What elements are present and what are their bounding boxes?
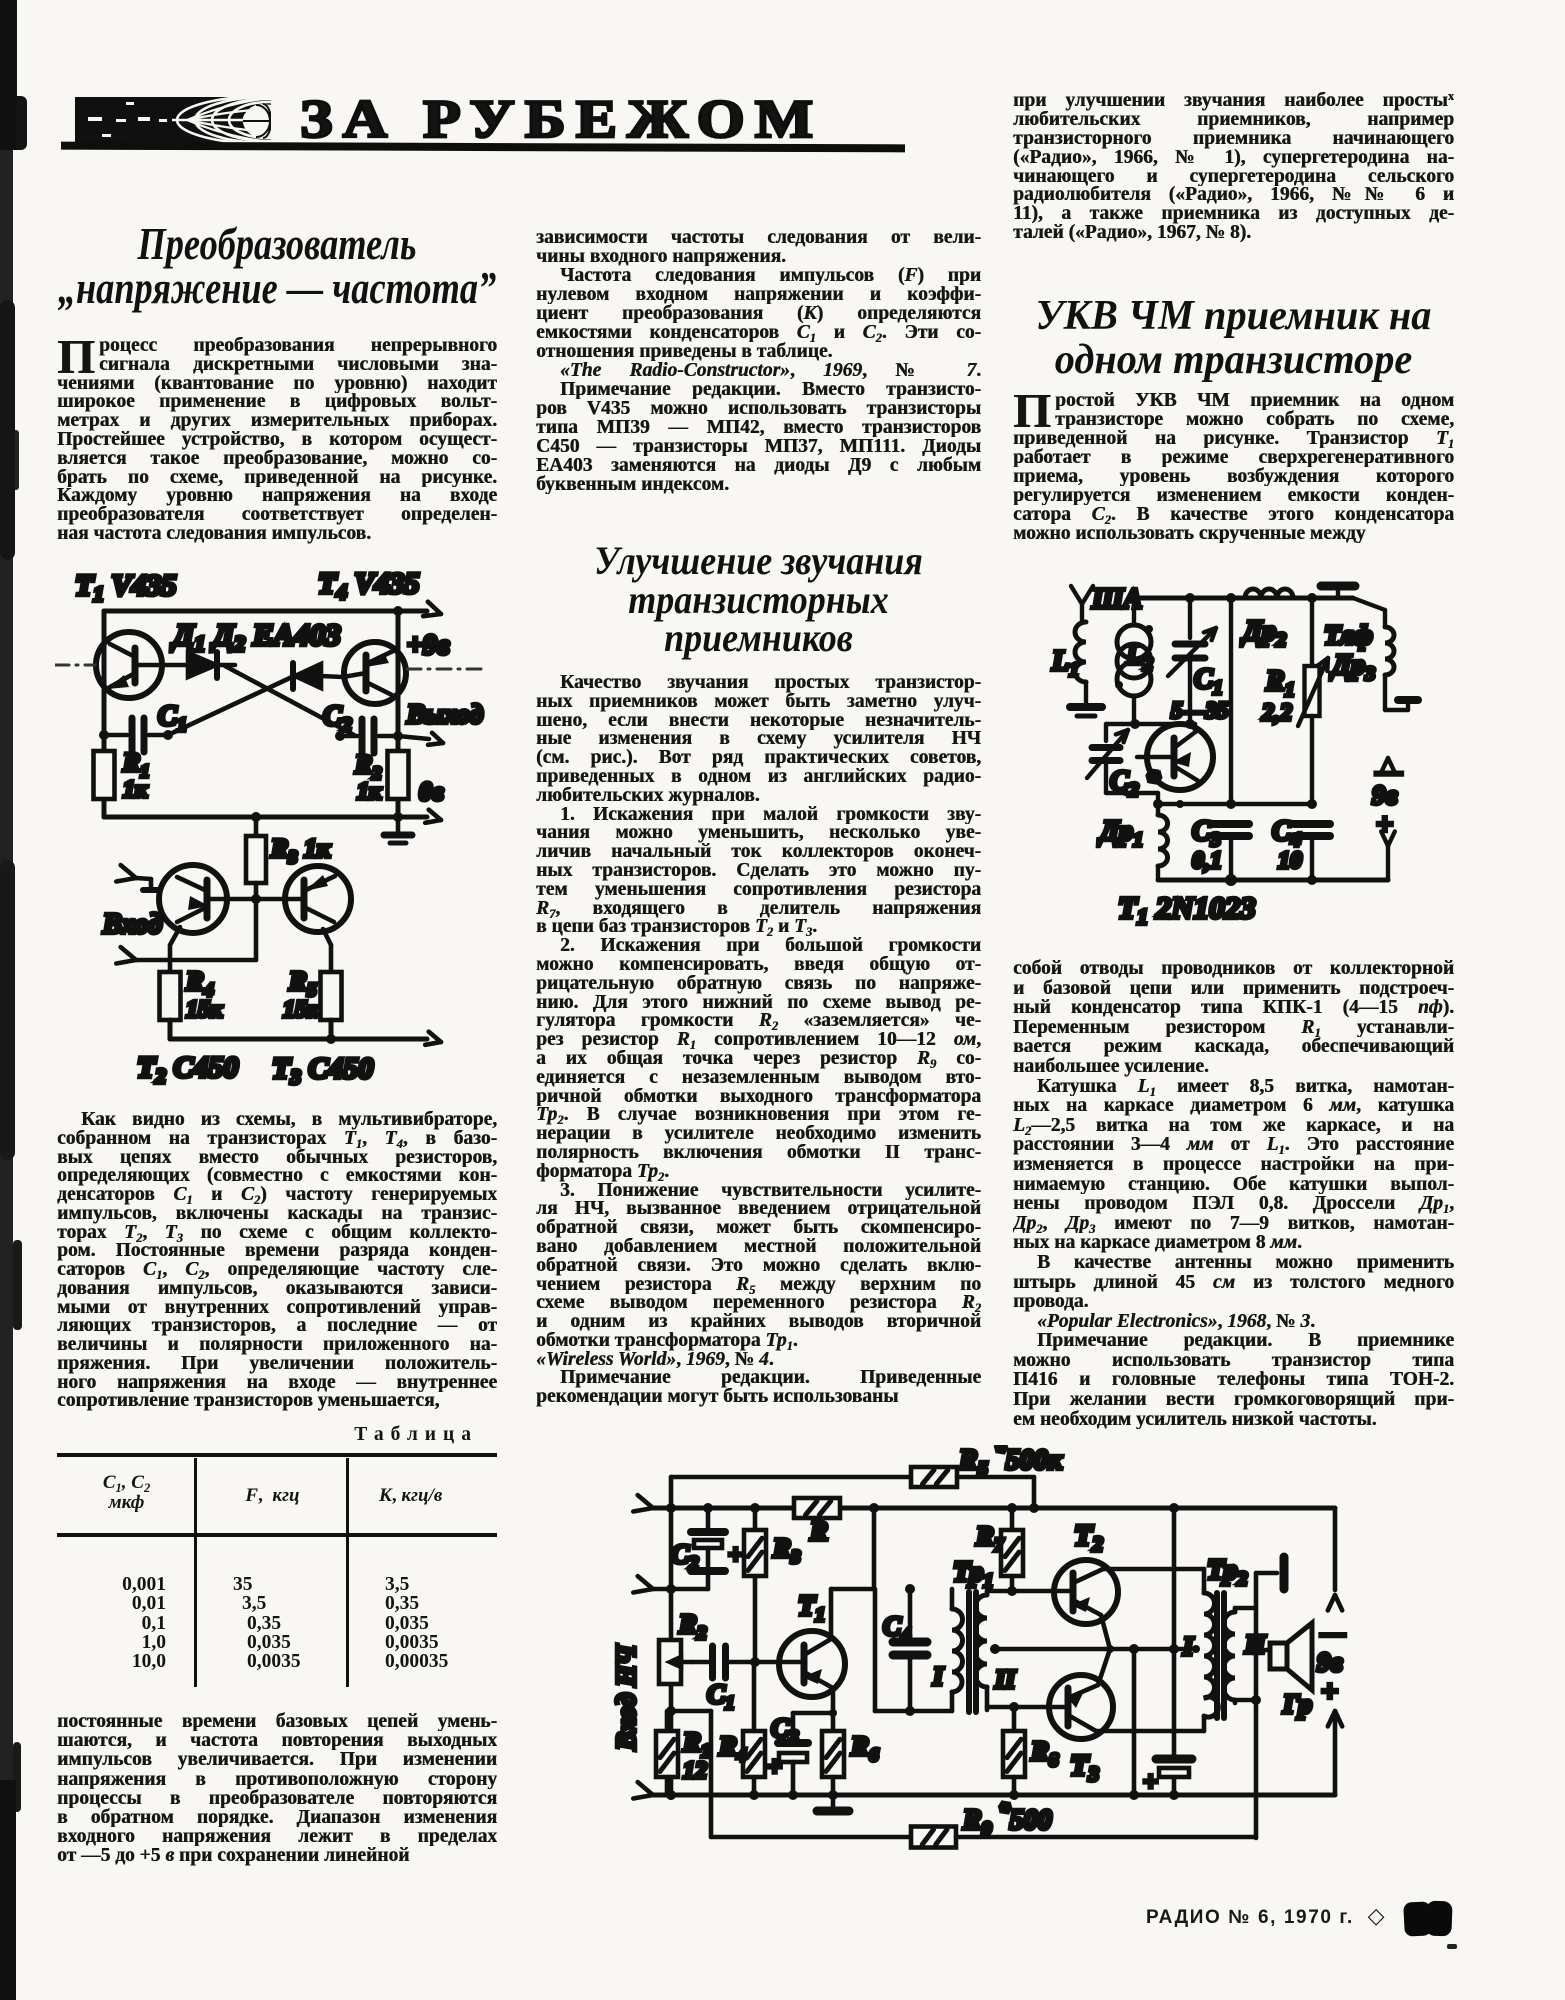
svg-text:R8: R8	[1030, 1736, 1059, 1771]
svg-text:Вход: Вход	[102, 909, 162, 940]
svg-text:I: I	[932, 1662, 944, 1691]
svg-text:+: +	[1143, 1767, 1158, 1796]
svg-text:12: 12	[683, 1758, 707, 1784]
svg-text:II: II	[994, 1665, 1016, 1694]
svg-text:R7: R7	[975, 1521, 1005, 1556]
svg-text:—: —	[1320, 1621, 1345, 1647]
svg-text:10: 10	[1278, 848, 1302, 874]
svg-text:0,1: 0,1	[1192, 848, 1222, 874]
svg-text:Др2: Др2	[1240, 616, 1286, 651]
svg-text:С4: С4	[883, 1611, 911, 1646]
svg-text:I: I	[1182, 1632, 1194, 1661]
svg-text:R5 *500к: R5 *500к	[958, 1445, 1063, 1480]
svg-text:Т3: Т3	[1070, 1749, 1099, 1786]
svg-text:R6: R6	[850, 1731, 879, 1766]
svg-text:Т3 С450: Т3 С450	[272, 1052, 373, 1089]
svg-text:R3 1к: R3 1к	[270, 834, 331, 867]
svg-text:5—35: 5—35	[1171, 698, 1229, 723]
svg-text:Т1: Т1	[798, 1591, 825, 1626]
svg-text:Т1 2N1023: Т1 2N1023	[1118, 890, 1256, 929]
svg-text:2,2: 2,2	[1261, 700, 1292, 726]
svg-text:Тр2: Тр2	[1207, 1555, 1247, 1590]
svg-text:Выход: Выход	[406, 699, 483, 729]
svg-text:Др1: Др1	[1097, 816, 1143, 851]
svg-text:R3: R3	[772, 1533, 801, 1568]
svg-text:15к: 15к	[283, 997, 320, 1023]
svg-text:0в: 0в	[419, 777, 444, 806]
svg-text:R9 *500: R9 *500	[962, 1798, 1052, 1840]
svg-text:R1: R1	[682, 1727, 711, 1762]
svg-text:R4: R4	[185, 966, 214, 1001]
svg-text:С1: С1	[1194, 664, 1223, 699]
svg-text:R2: R2	[678, 1609, 707, 1644]
svg-text:С2 *: С2 *	[1110, 766, 1161, 801]
svg-text:Т2 С450: Т2 С450	[137, 1051, 238, 1088]
svg-text:1к: 1к	[123, 777, 148, 803]
svg-text:Т1 V435: Т1 V435	[75, 569, 176, 606]
svg-text:Вход НЧ: Вход НЧ	[611, 1644, 641, 1751]
svg-text:+: +	[1321, 1675, 1338, 1708]
svg-text:1к: 1к	[357, 779, 382, 805]
svg-text:R: R	[809, 1516, 828, 1546]
svg-text:R5: R5	[288, 966, 317, 1001]
svg-text:Д1 Д2 ЕА403: Д1 Д2 ЕА403	[170, 617, 341, 656]
svg-text:9в: 9в	[1317, 1647, 1343, 1677]
svg-text:+: +	[767, 1752, 782, 1781]
svg-text:9в: 9в	[1372, 780, 1398, 810]
svg-text:R1: R1	[1265, 666, 1295, 701]
svg-text:Т4 V435: Т4 V435	[318, 567, 419, 604]
svg-text:Др3: Др3	[1329, 650, 1375, 685]
svg-text:+9в: +9в	[407, 630, 450, 661]
svg-text:Т2: Т2	[1074, 1519, 1103, 1556]
svg-text:С2: С2	[323, 701, 352, 736]
svg-text:Тлф: Тлф	[1324, 620, 1373, 650]
svg-text:Гр: Гр	[1282, 1689, 1312, 1719]
svg-text:Тр1: Тр1	[953, 1557, 993, 1592]
svg-text:+: +	[728, 1540, 743, 1569]
svg-text:15к: 15к	[186, 997, 223, 1023]
svg-text:С1: С1	[158, 701, 187, 736]
